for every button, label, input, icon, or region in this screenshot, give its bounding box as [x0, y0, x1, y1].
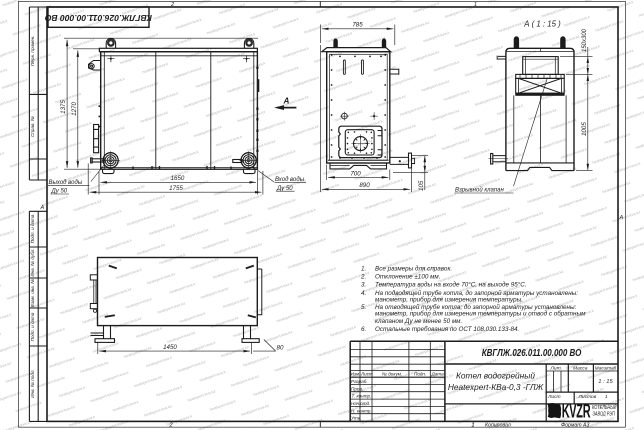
svg-text:2.: 2. [360, 273, 366, 280]
svg-text:890: 890 [359, 182, 370, 189]
svg-text:Температура воды на входе 70°С: Температура воды на входе 70°С, на выход… [375, 281, 527, 289]
svg-text:Подп. и дата: Подп. и дата [30, 312, 35, 341]
svg-text:Перв. примен.: Перв. примен. [30, 35, 35, 66]
svg-text:Котел водогрейный: Котел водогрейный [456, 371, 535, 381]
svg-text:1755: 1755 [169, 185, 183, 192]
svg-text:105: 105 [418, 180, 425, 191]
svg-text:Все размеры для справок.: Все размеры для справок. [375, 265, 452, 273]
svg-text:3.: 3. [361, 282, 366, 289]
svg-text:А ( 1 : 15 ): А ( 1 : 15 ) [523, 19, 561, 28]
svg-text:Листов: Листов [578, 394, 597, 400]
svg-text:Лит.: Лит. [550, 365, 562, 371]
svg-text:1 : 15: 1 : 15 [598, 379, 613, 385]
svg-text:4.: 4. [361, 290, 366, 297]
svg-text:Разраб.: Разраб. [351, 379, 368, 384]
svg-text:Подп.: Подп. [414, 372, 426, 377]
svg-text:Лист: Лист [547, 394, 561, 400]
svg-text:А: А [40, 205, 45, 211]
svg-text:Пров.: Пров. [351, 386, 363, 391]
svg-text:Инв. № дубл.: Инв. № дубл. [30, 248, 35, 276]
svg-text:KVZR: KVZR [562, 401, 591, 422]
svg-text:Heatexpert-КВа-0,3 -ГЛЖ: Heatexpert-КВа-0,3 -ГЛЖ [448, 382, 545, 392]
svg-text:ЗАВОД РЭП: ЗАВОД РЭП [593, 411, 616, 417]
svg-text:Взрывной клапан: Взрывной клапан [455, 187, 504, 194]
svg-text:Справ. №: Справ. № [30, 116, 35, 137]
svg-text:А: А [283, 97, 290, 106]
svg-text:Взам. инв. №: Взам. инв. № [30, 279, 35, 307]
svg-text:А: А [619, 215, 624, 221]
svg-text:700: 700 [350, 170, 361, 177]
svg-text:1: 1 [472, 422, 475, 428]
svg-text:№ докум.: № докум. [382, 372, 402, 377]
svg-text:Т. контр.: Т. контр. [352, 394, 372, 399]
svg-text:2: 2 [170, 2, 174, 8]
svg-text:1: 1 [474, 2, 477, 8]
svg-text:150х300: 150х300 [582, 28, 588, 52]
svg-text:Утв.: Утв. [351, 416, 361, 421]
svg-text:Остальные требования по ОСТ 10: Остальные требования по ОСТ 108.030.133-… [375, 325, 519, 333]
svg-text:785: 785 [352, 22, 363, 29]
svg-text:5.: 5. [361, 304, 366, 311]
svg-text:Формат А3: Формат А3 [561, 422, 589, 428]
svg-text:КВГЛЖ.026.011.00.000 ВО: КВГЛЖ.026.011.00.000 ВО [482, 347, 582, 358]
svg-text:1005: 1005 [581, 122, 588, 136]
svg-text:80: 80 [277, 345, 284, 352]
svg-text:1: 1 [605, 394, 608, 400]
svg-text:2: 2 [169, 423, 173, 429]
svg-text:Подп. и дата: Подп. и дата [30, 214, 35, 243]
svg-text:1650: 1650 [171, 175, 185, 182]
svg-text:Изм.: Изм. [351, 372, 361, 377]
svg-text:клапаном Ду не менее 50 мм.: клапаном Ду не менее 50 мм. [375, 318, 462, 325]
svg-text:Отклонение ±100 мм.: Отклонение ±100 мм. [375, 273, 440, 280]
svg-text:Вход воды: Вход воды [275, 177, 305, 183]
svg-text:Масса: Масса [573, 365, 588, 371]
svg-text:1375: 1375 [60, 100, 67, 114]
svg-text:1450: 1450 [163, 344, 177, 351]
svg-text:Инв. № подл.: Инв. № подл. [30, 369, 35, 398]
svg-text:6.: 6. [361, 326, 366, 333]
svg-text:Нач.отд.: Нач.отд. [351, 401, 370, 406]
svg-text:КВГЛЖ.026.011.00.000 ВО: КВГЛЖ.026.011.00.000 ВО [45, 13, 152, 23]
svg-text:манометр, прибор для измерения: манометр, прибор для измерения температу… [375, 296, 523, 304]
svg-text:1.: 1. [361, 266, 366, 273]
svg-text:1270: 1270 [71, 102, 78, 116]
svg-text:Н. контр.: Н. контр. [351, 408, 372, 413]
svg-text:Лист: Лист [360, 372, 373, 377]
svg-text:Дата: Дата [431, 372, 445, 377]
svg-text:манометр, прибор для измерения: манометр, прибор для измерения температу… [375, 310, 586, 318]
svg-text:Масштаб: Масштаб [595, 365, 617, 370]
svg-text:Копировал: Копировал [485, 422, 511, 428]
